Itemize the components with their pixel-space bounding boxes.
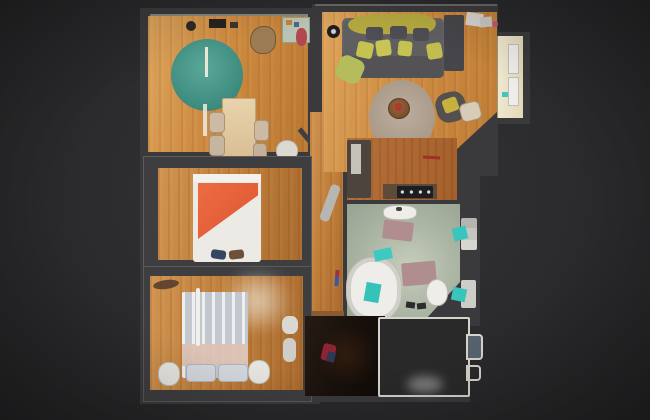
dark-slipper [406, 301, 416, 308]
bed-slipper [229, 249, 245, 260]
wardrobe-dark [444, 15, 464, 71]
lamp-pole [205, 47, 208, 77]
dark-cushion [390, 26, 407, 39]
dollhouse-viewport[interactable] [0, 0, 650, 420]
bed-headboard [193, 174, 261, 182]
pink-object [492, 21, 498, 27]
yellow-cushion [375, 39, 392, 57]
outline-protrusion-hook [466, 365, 481, 381]
counter-item [294, 22, 299, 27]
bath-mat [382, 219, 414, 242]
round-speaker [327, 25, 340, 38]
dark-cushion [366, 27, 383, 40]
white-chair [282, 316, 298, 334]
counter-item [286, 20, 292, 25]
dining-chair [209, 112, 225, 133]
shelf-object [186, 21, 196, 31]
dining-table [222, 98, 256, 162]
yellow-cushion [356, 41, 375, 60]
quilted-pillow [186, 364, 216, 382]
kitchenette-chair [250, 26, 276, 54]
toilet [426, 279, 448, 306]
balcony-window-frame [508, 44, 519, 74]
lamp-pole [203, 104, 207, 136]
shelf-object [230, 22, 238, 28]
balcony-window-frame [508, 77, 519, 106]
yellow-cushion [426, 42, 444, 60]
bed-lower-sheet [182, 344, 248, 366]
cooktop [397, 186, 433, 198]
bed-slipper [210, 249, 226, 260]
white-bench [283, 338, 296, 362]
yellow-cushion [397, 40, 412, 56]
nightstand [158, 362, 180, 386]
wall-trim [315, 4, 497, 6]
dining-chair [254, 120, 269, 141]
sink-faucet [396, 207, 402, 211]
table-decor [395, 103, 402, 111]
red-figure [296, 28, 307, 46]
hanging-towel [451, 287, 467, 303]
nightstand [248, 360, 270, 384]
shelf-object [209, 19, 226, 28]
dark-cushion [413, 28, 429, 41]
quilted-pillow [218, 364, 248, 382]
gray-haze-blob [407, 376, 443, 393]
white-box [480, 16, 493, 27]
dining-chair [209, 135, 225, 156]
dark-slipper [417, 303, 427, 310]
outline-protrusion-door [466, 334, 483, 360]
lamp-pole [196, 288, 200, 346]
balcony-object [502, 92, 508, 97]
open-cabinet-door [351, 144, 361, 174]
